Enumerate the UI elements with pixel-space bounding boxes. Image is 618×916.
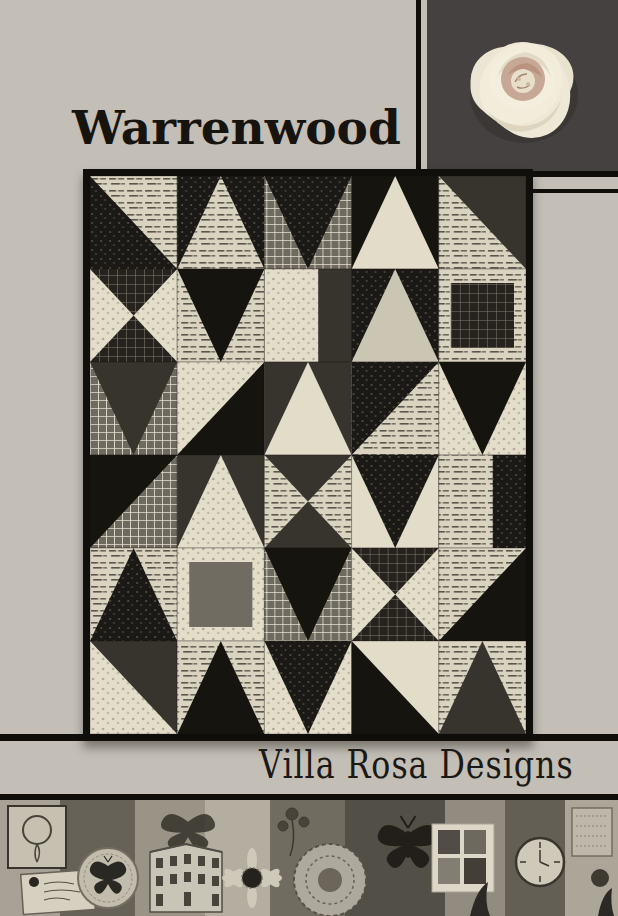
brand-name: Villa Rosa Designs: [259, 741, 574, 787]
page-title: Warrenwood: [72, 104, 401, 151]
horizontal-rule-secondary: [528, 189, 618, 193]
collage-strip: [0, 800, 618, 916]
rose-icon: [427, 0, 618, 172]
quilt-photo: [83, 169, 533, 741]
pattern-cover: Warrenwood: [0, 0, 618, 916]
bottom-accent-bar: [0, 734, 618, 741]
quilt-blocks: [90, 176, 526, 734]
vertical-divider-line: [416, 0, 421, 177]
rose-photo-panel: [427, 0, 618, 172]
